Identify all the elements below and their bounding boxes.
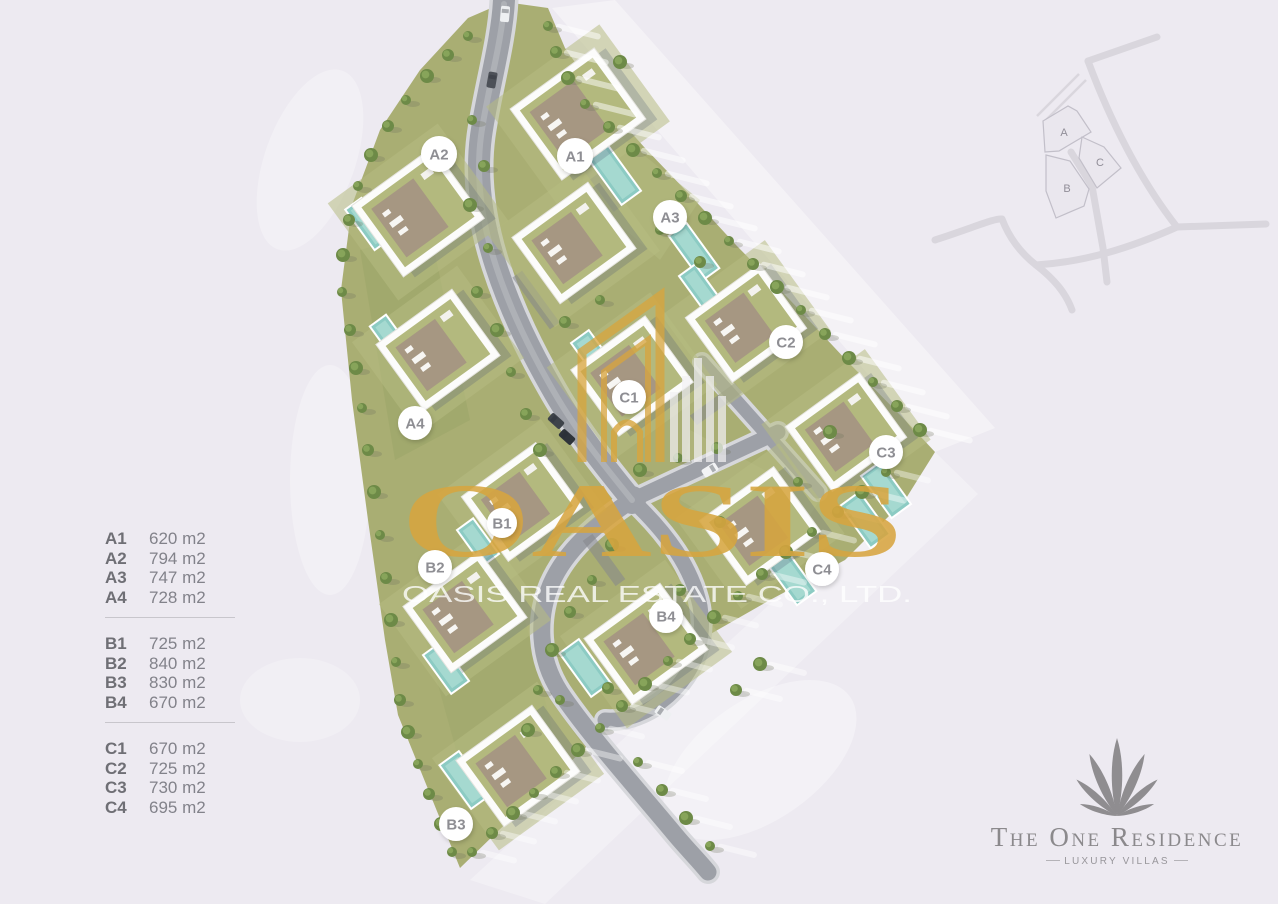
legend-divider bbox=[105, 722, 235, 723]
legend-row-c1: C1670 m2 bbox=[105, 739, 239, 759]
legend-row-b4: B4670 m2 bbox=[105, 693, 239, 713]
plot-badge-c1[interactable]: C1 bbox=[612, 380, 646, 414]
legend-plot-area: 730 m2 bbox=[149, 778, 206, 798]
plot-badge-a1[interactable]: A1 bbox=[557, 138, 593, 174]
legend-plot-area: 670 m2 bbox=[149, 693, 206, 713]
plot-badge-label: A3 bbox=[660, 210, 679, 227]
minimap-label-b: B bbox=[1063, 183, 1070, 195]
legend-plot-area: 840 m2 bbox=[149, 654, 206, 674]
plot-badge-label: B1 bbox=[492, 516, 511, 533]
site-plan-brochure-page: OASIS OASIS REAL ESTATE CO., LTD. A1A2A3… bbox=[0, 0, 1278, 904]
legend-plot-id: A3 bbox=[105, 568, 149, 588]
plot-badge-label: A1 bbox=[565, 149, 584, 166]
legend-row-a1: A1620 m2 bbox=[105, 529, 239, 549]
legend-plot-area: 794 m2 bbox=[149, 549, 206, 569]
car bbox=[500, 6, 510, 23]
legend-plot-id: A2 bbox=[105, 549, 149, 569]
legend-group-c: C1670 m2C2725 m2C3730 m2C4695 m2 bbox=[105, 739, 239, 817]
legend-group-a: A1620 m2A2794 m2A3747 m2A4728 m2 bbox=[105, 529, 239, 607]
legend-row-b1: B1725 m2 bbox=[105, 634, 239, 654]
plot-badge-c3[interactable]: C3 bbox=[869, 435, 903, 469]
plot-badge-label: A2 bbox=[429, 147, 448, 164]
legend-row-a2: A2794 m2 bbox=[105, 549, 239, 569]
plot-badge-label: C3 bbox=[876, 445, 895, 462]
plot-badge-b2[interactable]: B2 bbox=[418, 550, 452, 584]
plot-badge-label: C1 bbox=[619, 390, 638, 407]
legend-plot-id: C2 bbox=[105, 759, 149, 779]
plot-badge-b3[interactable]: B3 bbox=[439, 807, 473, 841]
legend-plot-id: A1 bbox=[105, 529, 149, 549]
legend-divider bbox=[105, 617, 235, 618]
legend-plot-area: 695 m2 bbox=[149, 798, 206, 818]
plot-badge-b1[interactable]: B1 bbox=[487, 508, 517, 538]
plot-badge-c4[interactable]: C4 bbox=[805, 552, 839, 586]
legend-plot-area: 620 m2 bbox=[149, 529, 206, 549]
legend-plot-id: C4 bbox=[105, 798, 149, 818]
plot-badge-label: B4 bbox=[656, 609, 676, 626]
legend-plot-id: A4 bbox=[105, 588, 149, 608]
plot-badge-label: C2 bbox=[776, 335, 795, 352]
plot-badge-label: B2 bbox=[425, 560, 444, 577]
logo-subtitle: LUXURY VILLAS bbox=[1064, 856, 1170, 867]
legend-plot-area: 670 m2 bbox=[149, 739, 206, 759]
legend-row-b2: B2840 m2 bbox=[105, 654, 239, 674]
legend-group-b: B1725 m2B2840 m2B3830 m2B4670 m2 bbox=[105, 634, 239, 712]
legend-plot-id: C1 bbox=[105, 739, 149, 759]
plot-badge-label: A4 bbox=[405, 416, 425, 433]
legend-plot-id: C3 bbox=[105, 778, 149, 798]
legend-plot-id: B2 bbox=[105, 654, 149, 674]
plot-badge-a2[interactable]: A2 bbox=[421, 136, 457, 172]
legend-row-a3: A3747 m2 bbox=[105, 568, 239, 588]
minimap-label-a: A bbox=[1060, 127, 1068, 139]
legend-row-b3: B3830 m2 bbox=[105, 673, 239, 693]
legend-plot-area: 728 m2 bbox=[149, 588, 206, 608]
plot-badge-c2[interactable]: C2 bbox=[769, 325, 803, 359]
legend-plot-area: 725 m2 bbox=[149, 759, 206, 779]
plot-area-legend: A1620 m2A2794 m2A3747 m2A4728 m2B1725 m2… bbox=[105, 529, 239, 817]
minimap-label-c: C bbox=[1096, 157, 1104, 169]
logo-title: The One Residence bbox=[991, 822, 1243, 852]
legend-row-c3: C3730 m2 bbox=[105, 778, 239, 798]
plot-badge-b4[interactable]: B4 bbox=[649, 599, 683, 633]
legend-row-c2: C2725 m2 bbox=[105, 759, 239, 779]
plot-badge-label: C4 bbox=[812, 562, 832, 579]
plot-badge-label: B3 bbox=[446, 817, 465, 834]
plot-badge-a3[interactable]: A3 bbox=[653, 200, 687, 234]
plot-badge-a4[interactable]: A4 bbox=[398, 406, 432, 440]
legend-plot-area: 725 m2 bbox=[149, 634, 206, 654]
legend-plot-area: 830 m2 bbox=[149, 673, 206, 693]
legend-plot-id: B4 bbox=[105, 693, 149, 713]
legend-row-c4: C4695 m2 bbox=[105, 798, 239, 818]
legend-plot-id: B3 bbox=[105, 673, 149, 693]
legend-plot-id: B1 bbox=[105, 634, 149, 654]
legend-row-a4: A4728 m2 bbox=[105, 588, 239, 608]
legend-plot-area: 747 m2 bbox=[149, 568, 206, 588]
